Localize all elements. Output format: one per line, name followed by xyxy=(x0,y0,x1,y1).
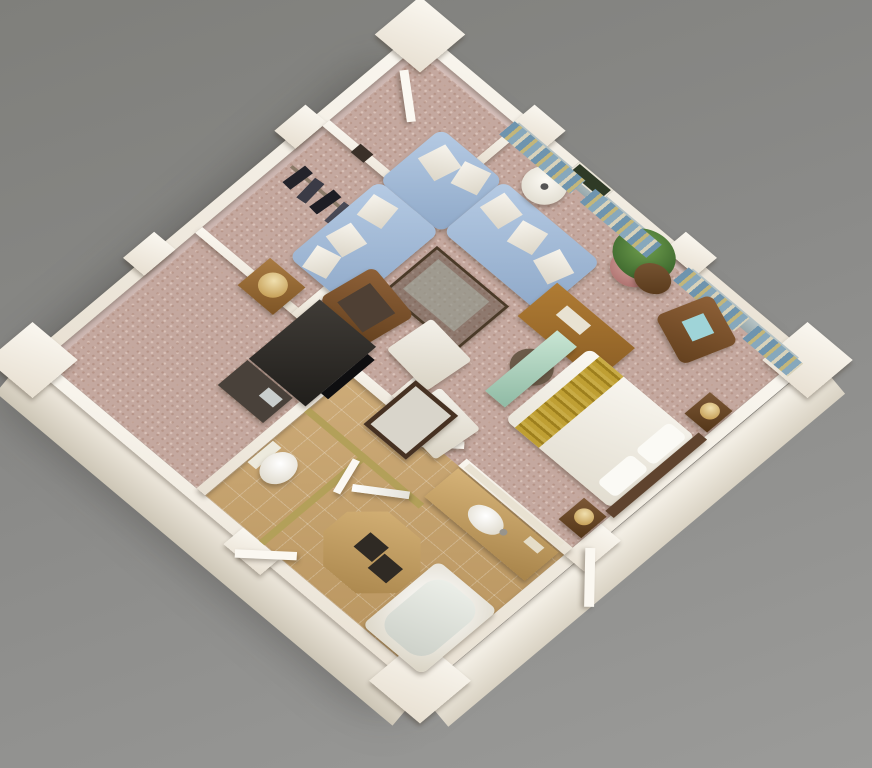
scene-backdrop xyxy=(0,0,872,768)
bedroom-exterior-door xyxy=(584,548,595,607)
floorplan-3d xyxy=(24,27,816,692)
floor xyxy=(24,27,816,692)
